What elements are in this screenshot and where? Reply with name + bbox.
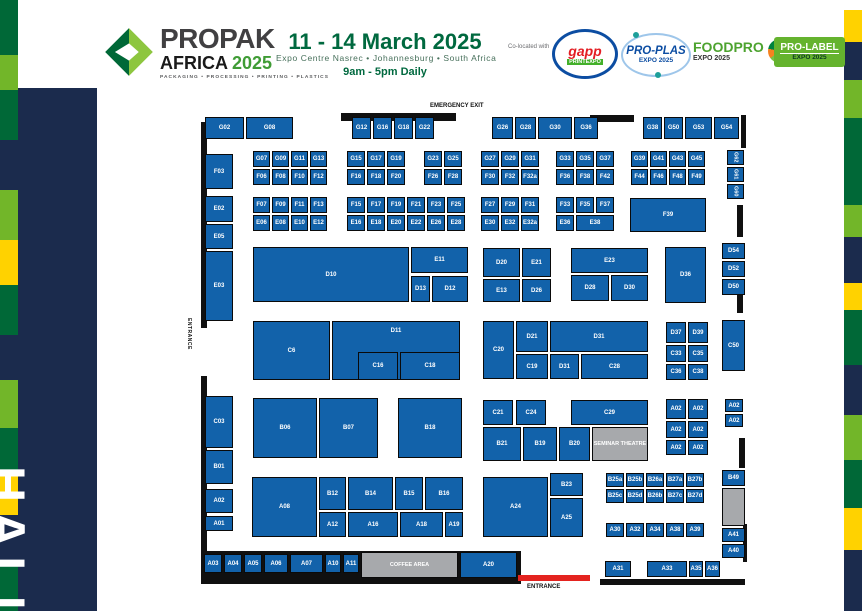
entrance-side-label: ENTRANCE: [186, 318, 192, 350]
booth-f03: F03: [205, 154, 233, 189]
booth-f07: F07: [253, 197, 270, 213]
booth-g27: G27: [481, 151, 499, 167]
booth-f33: F33: [556, 197, 574, 213]
booth-label: G07: [256, 156, 267, 162]
booth-label: F42: [600, 174, 610, 180]
booth-d12: D12: [432, 276, 468, 302]
booth-label: F48: [672, 174, 682, 180]
booth-e02: E02: [205, 196, 233, 222]
booth-f23: F23: [427, 197, 445, 213]
booth-label: A02: [728, 418, 739, 424]
booth-c35: C35: [688, 345, 708, 362]
booth-f25: F25: [447, 197, 465, 213]
booth-label: G26: [497, 125, 508, 131]
booth-label: G08: [264, 125, 275, 131]
booth-label: B07: [343, 425, 354, 431]
booth-label: G30: [549, 125, 560, 131]
booth-f32a: F32a: [521, 169, 539, 185]
booth-f42: F42: [596, 169, 614, 185]
booth-label: F37: [600, 202, 610, 208]
booth-label: F35: [580, 202, 590, 208]
booth-label: A12: [327, 522, 338, 528]
booth-label: A24: [510, 504, 521, 510]
booth-a08: A08: [252, 477, 317, 537]
booth-b27d: B27d: [686, 489, 704, 503]
booth-g25: G25: [444, 151, 462, 167]
booth-e23: E23: [571, 248, 648, 273]
booth-f37: F37: [596, 197, 614, 213]
booth-f30: F30: [481, 169, 499, 185]
booth-f26: F26: [424, 169, 442, 185]
booth-label: F09: [275, 202, 285, 208]
booth-d36: D36: [665, 247, 706, 303]
booth-label: E28: [451, 220, 462, 226]
booth-f12: F12: [310, 169, 327, 185]
booth-a02: A02: [688, 421, 708, 438]
booth-g11: G11: [291, 151, 308, 167]
booth-b25a: B25a: [606, 473, 624, 487]
booth-a11: A11: [343, 554, 359, 573]
booth-label: F26: [428, 174, 438, 180]
booth-label: A11: [346, 561, 357, 567]
floor-plan: EMERGENCY EXIT ENTRANCE ENTRANCE G02G08G…: [0, 0, 862, 611]
booth-label: A02: [692, 427, 703, 433]
booth-label: C50: [728, 343, 739, 349]
booth-label: F17: [371, 202, 381, 208]
booth-label: D12: [444, 286, 455, 292]
booth-e26: E26: [427, 215, 445, 231]
booth-label: D11: [391, 328, 402, 334]
booth-label: F03: [214, 169, 224, 175]
booth-label: D31: [559, 364, 570, 370]
booth-label: A08: [279, 504, 290, 510]
booth-f16: F16: [347, 169, 365, 185]
booth-b26a: B26a: [646, 473, 664, 487]
booth-label: F28: [448, 174, 458, 180]
booth-g39: G39: [631, 151, 648, 167]
booth-label: F36: [560, 174, 570, 180]
booth-label: G23: [427, 156, 438, 162]
booth-b49: B49: [722, 470, 745, 486]
booth-label: C28: [609, 364, 620, 370]
booth-c16: C16: [358, 352, 398, 380]
booth-label: A19: [448, 522, 459, 528]
booth-b19: B19: [523, 427, 557, 461]
booth-d31: D31: [550, 321, 648, 352]
booth-label: B12: [327, 491, 338, 497]
booth-c29: C29: [571, 400, 648, 425]
booth-label: B15: [403, 491, 414, 497]
booth-label: A31: [612, 566, 623, 572]
booth-c28: C28: [581, 354, 648, 379]
booth-label: SEMINAR THEATRE: [594, 441, 646, 447]
booth-a18: A18: [400, 512, 443, 537]
booth-label: G13: [313, 156, 324, 162]
booth-e18: E18: [367, 215, 385, 231]
booth-a07: A07: [290, 554, 323, 573]
booth-label: E22: [411, 220, 422, 226]
booth-f31: F31: [521, 197, 539, 213]
booth-label: E30: [485, 220, 496, 226]
booth-label: F25: [451, 202, 461, 208]
booth-label: F13: [313, 202, 323, 208]
booth-label: A40: [728, 548, 739, 554]
booth-e13: E13: [483, 279, 520, 302]
booth-label: F32: [505, 174, 515, 180]
booth-label: F32a: [523, 174, 537, 180]
booth-g36: G36: [574, 117, 598, 139]
area-seminar-theatre: SEMINAR THEATRE: [592, 427, 648, 461]
booth-d50: D50: [722, 279, 745, 295]
booth-g60: G60: [727, 184, 744, 199]
booth-a02: A02: [666, 399, 686, 419]
booth-d52: D52: [722, 261, 745, 277]
booth-g02: G02: [205, 117, 244, 139]
booth-c36: C36: [666, 364, 686, 380]
booth-d28: D28: [571, 275, 609, 301]
booth-label: G41: [653, 156, 664, 162]
booth-label: B25a: [608, 477, 622, 483]
booth-label: A18: [416, 522, 427, 528]
booth-label: A02: [670, 406, 681, 412]
booth-f09: F09: [272, 197, 289, 213]
booth-b25c: B25c: [606, 489, 624, 503]
booth-label: G19: [390, 156, 401, 162]
booth-label: G35: [579, 156, 590, 162]
booth-f35: F35: [576, 197, 594, 213]
booth-g23: G23: [424, 151, 442, 167]
booth-label: F11: [294, 202, 304, 208]
booth-label: D36: [680, 272, 691, 278]
booth-g28: G28: [515, 117, 536, 139]
booth-label: G50: [668, 125, 679, 131]
booth-label: A05: [247, 561, 258, 567]
booth-g37: G37: [596, 151, 614, 167]
booth-label: A32: [629, 527, 640, 533]
booth-label: C6: [288, 348, 296, 354]
booth-label: C38: [692, 369, 703, 375]
booth-e32: E32: [501, 215, 519, 231]
entrance-main-label: ENTRANCE: [527, 584, 560, 590]
booth-label: B14: [365, 491, 376, 497]
booth-e05: E05: [205, 224, 233, 249]
booth-f28: F28: [444, 169, 462, 185]
booth-a36: A36: [705, 561, 720, 577]
booth-label: C29: [604, 410, 615, 416]
booth-f18: F18: [367, 169, 385, 185]
booth-label: F27: [485, 202, 495, 208]
booth-e21: E21: [522, 248, 551, 277]
booth-label: G45: [691, 156, 702, 162]
booth-label: A02: [728, 403, 739, 409]
booth-e10: E10: [291, 215, 308, 231]
booth-g62: G62: [727, 150, 744, 165]
booth-b18: B18: [398, 398, 462, 458]
booth-label: D26: [531, 288, 542, 294]
booth-c03: C03: [205, 396, 233, 448]
booth-label: C19: [526, 364, 537, 370]
booth-label: D20: [496, 260, 507, 266]
booth-label: F30: [485, 174, 495, 180]
booth-label: A20: [483, 562, 494, 568]
booth-label: A06: [270, 561, 281, 567]
booth-b21: B21: [483, 427, 521, 461]
booth-a19: A19: [445, 512, 463, 537]
booth-b01: B01: [205, 450, 233, 484]
booth-b26b: B26b: [646, 489, 664, 503]
booth-d31: D31: [550, 354, 579, 379]
booth-label: D39: [692, 330, 703, 336]
booth-label: B16: [438, 491, 449, 497]
booth-label: G27: [484, 156, 495, 162]
booth-e03: E03: [205, 251, 233, 321]
booth-g50: G50: [664, 117, 683, 139]
booth-b25b: B25b: [626, 473, 644, 487]
booth-f32: F32: [501, 169, 519, 185]
booth-c19: C19: [516, 354, 548, 379]
wall-segment: [600, 579, 745, 585]
booth-g07: G07: [253, 151, 270, 167]
booth-label: G54: [721, 125, 732, 131]
booth-g45: G45: [688, 151, 705, 167]
booth-label: G11: [294, 156, 305, 162]
booth-label: G62: [733, 152, 739, 162]
booth-label: E26: [431, 220, 442, 226]
booth-label: B06: [279, 425, 290, 431]
booth-a06: A06: [264, 554, 288, 573]
booth-a41: A41: [722, 528, 745, 542]
booth-d21: D21: [516, 321, 548, 352]
booth-label: E36: [560, 220, 571, 226]
booth-label: G33: [559, 156, 570, 162]
booth-label: F21: [411, 202, 421, 208]
booth-a04: A04: [224, 554, 242, 573]
booth-label: A10: [327, 561, 338, 567]
booth-g31: G31: [521, 151, 539, 167]
booth-g30: G30: [538, 117, 572, 139]
booth-label: G31: [524, 156, 535, 162]
booth-label: E08: [275, 220, 286, 226]
booth-a30: A30: [606, 523, 624, 537]
booth-label: B23: [561, 482, 572, 488]
booth-c24: C24: [516, 400, 546, 425]
booth-label: C20: [493, 347, 504, 353]
booth-g13: G13: [310, 151, 327, 167]
booth-e28: E28: [447, 215, 465, 231]
booth-b06: B06: [253, 398, 317, 458]
booth-e08: E08: [272, 215, 289, 231]
booth-d37: D37: [666, 322, 686, 343]
booth-label: F46: [653, 174, 663, 180]
booth-a33: A33: [647, 561, 687, 577]
booth-label: B20: [569, 441, 580, 447]
booth-label: E16: [351, 220, 362, 226]
booth-g38: G38: [643, 117, 662, 139]
booth-label: F29: [505, 202, 515, 208]
booth-label: E05: [214, 234, 225, 240]
wall-segment: [739, 438, 745, 468]
booth-f29: F29: [501, 197, 519, 213]
booth-label: F49: [691, 174, 701, 180]
booth-label: A35: [690, 566, 701, 572]
booth-label: G09: [275, 156, 286, 162]
booth-label: G36: [580, 125, 591, 131]
booth-label: E38: [590, 220, 601, 226]
booth-c20: C20: [483, 321, 514, 379]
booth-label: A02: [213, 498, 224, 504]
booth-label: F20: [391, 174, 401, 180]
booth-label: F18: [371, 174, 381, 180]
booth-label: D54: [728, 248, 739, 254]
booth-label: B27a: [668, 477, 682, 483]
area-block: [722, 488, 745, 526]
booth-label: F15: [351, 202, 361, 208]
booth-label: F38: [580, 174, 590, 180]
booth-g35: G35: [576, 151, 594, 167]
booth-f17: F17: [367, 197, 385, 213]
booth-c21: C21: [483, 400, 513, 425]
booth-f15: F15: [347, 197, 365, 213]
booth-label: F19: [391, 202, 401, 208]
booth-label: C36: [670, 369, 681, 375]
booth-a02: A02: [688, 399, 708, 419]
booth-g41: G41: [650, 151, 667, 167]
booth-label: G53: [693, 125, 704, 131]
booth-label: F12: [313, 174, 323, 180]
booth-a01: A01: [205, 516, 233, 531]
booth-label: G22: [419, 125, 430, 131]
booth-label: A41: [728, 532, 739, 538]
booth-label: B25c: [608, 493, 622, 499]
booth-label: G25: [447, 156, 458, 162]
booth-label: E20: [391, 220, 402, 226]
booth-label: F31: [525, 202, 535, 208]
booth-label: D10: [325, 272, 336, 278]
booth-e06: E06: [253, 215, 270, 231]
booth-c38: C38: [688, 364, 708, 380]
booth-a03: A03: [204, 554, 222, 573]
booth-a02: A02: [725, 414, 743, 427]
booth-label: B27c: [668, 493, 682, 499]
booth-label: G60: [733, 186, 739, 196]
booth-label: A04: [227, 561, 238, 567]
booth-label: E06: [256, 220, 267, 226]
booth-e12: E12: [310, 215, 327, 231]
floorplan-page: HALL 5 PROPAK AFRICA2025 PACKAGING • PRO…: [0, 0, 862, 611]
booth-g33: G33: [556, 151, 574, 167]
booth-f36: F36: [556, 169, 574, 185]
booth-g09: G09: [272, 151, 289, 167]
booth-f13: F13: [310, 197, 327, 213]
booth-label: E32: [505, 220, 516, 226]
booth-b27c: B27c: [666, 489, 684, 503]
booth-g26: G26: [492, 117, 513, 139]
booth-a05: A05: [244, 554, 262, 573]
booth-f20: F20: [387, 169, 405, 185]
booth-label: F39: [663, 212, 673, 218]
booth-g16: G16: [373, 117, 392, 139]
booth-label: B27d: [688, 493, 703, 499]
wall-segment: [737, 205, 743, 237]
booth-label: C21: [492, 410, 503, 416]
wall-segment: [741, 115, 746, 148]
booth-label: B27b: [688, 477, 703, 483]
booth-label: A03: [207, 561, 218, 567]
booth-f06: F06: [253, 169, 270, 185]
booth-g17: G17: [367, 151, 385, 167]
booth-a25: A25: [550, 498, 583, 537]
booth-g15: G15: [347, 151, 365, 167]
booth-label: B19: [534, 441, 545, 447]
booth-f44: F44: [631, 169, 648, 185]
booth-e11: E11: [411, 247, 468, 273]
booth-f46: F46: [650, 169, 667, 185]
booth-label: G15: [350, 156, 361, 162]
booth-label: A02: [692, 406, 703, 412]
booth-b23: B23: [550, 473, 583, 496]
booth-a34: A34: [646, 523, 664, 537]
booth-f19: F19: [387, 197, 405, 213]
area-coffee-area: COFFEE AREA: [361, 552, 458, 578]
booth-a32: A32: [626, 523, 644, 537]
booth-label: G28: [520, 125, 531, 131]
booth-label: B25b: [628, 477, 643, 483]
booth-label: C16: [372, 363, 383, 369]
booth-c6: C6: [253, 321, 330, 380]
booth-label: B21: [496, 441, 507, 447]
booth-label: C24: [525, 410, 536, 416]
booth-f10: F10: [291, 169, 308, 185]
booth-label: C03: [213, 419, 224, 425]
booth-f11: F11: [291, 197, 308, 213]
booth-label: A36: [707, 566, 718, 572]
booth-d13: D13: [411, 276, 430, 302]
booth-b12: B12: [319, 477, 346, 510]
booth-label: D13: [415, 286, 426, 292]
booth-label: E21: [531, 260, 542, 266]
booth-a02: A02: [205, 489, 233, 513]
booth-label: B25d: [628, 493, 643, 499]
booth-f49: F49: [688, 169, 705, 185]
booth-label: A01: [213, 521, 224, 527]
booth-g22: G22: [415, 117, 434, 139]
booth-label: G39: [634, 156, 645, 162]
booth-label: A07: [301, 561, 312, 567]
booth-g29: G29: [501, 151, 519, 167]
booth-label: A34: [649, 527, 660, 533]
booth-label: G18: [398, 125, 409, 131]
booth-b25d: B25d: [626, 489, 644, 503]
booth-d20: D20: [483, 248, 520, 277]
booth-f38: F38: [576, 169, 594, 185]
booth-d30: D30: [611, 275, 648, 301]
booth-b07: B07: [319, 398, 378, 458]
booth-a35: A35: [689, 561, 703, 577]
booth-c33: C33: [666, 345, 686, 362]
booth-label: D52: [728, 266, 739, 272]
booth-label: F33: [560, 202, 570, 208]
booth-label: G37: [599, 156, 610, 162]
booth-e30: E30: [481, 215, 499, 231]
booth-a12: A12: [319, 512, 346, 537]
booth-g53: G53: [685, 117, 712, 139]
booth-a38: A38: [666, 523, 684, 537]
booth-label: G16: [377, 125, 388, 131]
booth-d10: D10: [253, 247, 409, 302]
booth-g19: G19: [387, 151, 405, 167]
booth-e38: E38: [576, 215, 614, 231]
booth-label: C18: [424, 363, 435, 369]
